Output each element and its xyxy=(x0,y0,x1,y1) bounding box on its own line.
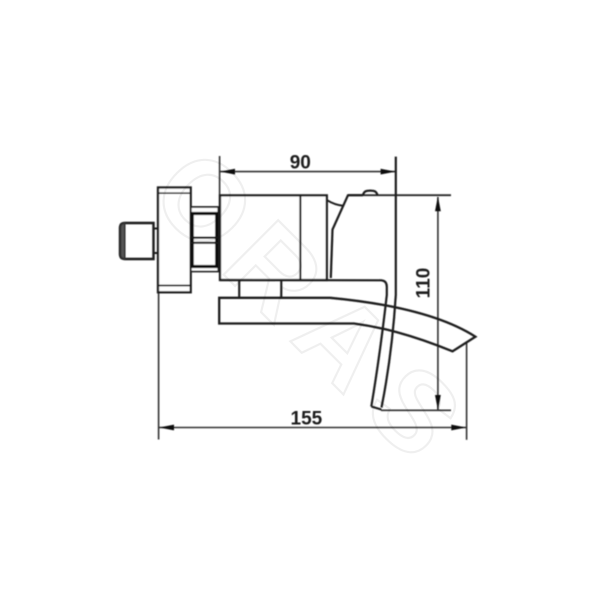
svg-text:90: 90 xyxy=(290,152,311,173)
svg-text:110: 110 xyxy=(414,268,435,299)
svg-text:155: 155 xyxy=(291,408,323,429)
